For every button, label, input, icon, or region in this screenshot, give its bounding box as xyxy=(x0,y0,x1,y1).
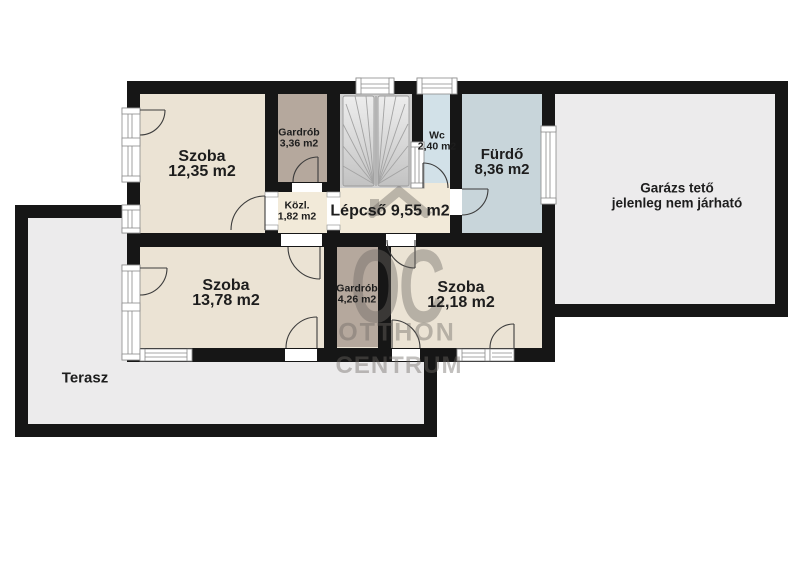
window xyxy=(122,265,140,360)
room-area: 12,35 m2 xyxy=(168,164,236,179)
room-name: Wc xyxy=(418,131,457,142)
main-block xyxy=(127,81,555,362)
floor-plan-page: OC OTTHON CENTRUM Szoba 12,35 m2 Gardrób… xyxy=(0,0,800,565)
room-label-garazs: Garázs tető jelenleg nem járható xyxy=(612,182,743,211)
room-area: 2,40 m2 xyxy=(418,141,457,152)
room-label-wc: Wc 2,40 m2 xyxy=(418,131,457,152)
room-label-szoba2: Szoba 13,78 m2 xyxy=(192,278,260,308)
window xyxy=(140,349,192,361)
window xyxy=(122,108,140,182)
room-name: Gardrób xyxy=(278,128,319,139)
room-area: 4,26 m2 xyxy=(336,294,377,305)
room-area: 12,18 m2 xyxy=(427,295,495,310)
room-area: 8,36 m2 xyxy=(474,162,529,177)
room-label-kozl: Közl. 1,82 m2 xyxy=(278,201,317,222)
room-name: Fürdő xyxy=(474,147,529,162)
room-area: 13,78 m2 xyxy=(192,293,260,308)
room-label-furdo: Fürdő 8,36 m2 xyxy=(474,147,529,177)
room-label-gardrob1: Gardrób 3,36 m2 xyxy=(278,128,319,149)
room-name: Garázs tető xyxy=(612,182,743,197)
room-label-szoba3: Szoba 12,18 m2 xyxy=(427,280,495,310)
room-name: Terasz xyxy=(62,370,108,387)
room-name: Lépcső xyxy=(330,203,386,220)
room-name: Gardrób xyxy=(336,284,377,295)
staircase xyxy=(340,94,412,188)
window xyxy=(356,78,394,94)
room-name: Szoba xyxy=(168,149,236,164)
room-name: Szoba xyxy=(427,280,495,295)
room-label-szoba1: Szoba 12,35 m2 xyxy=(168,149,236,179)
floor-plan-drawing xyxy=(0,0,800,565)
room-area: 1,82 m2 xyxy=(278,211,317,222)
room-area: 3,36 m2 xyxy=(278,138,319,149)
room-name: Szoba xyxy=(192,278,260,293)
window xyxy=(541,126,556,204)
window xyxy=(417,78,457,94)
room-area: 9,55 m2 xyxy=(391,203,450,220)
room-name: Közl. xyxy=(278,201,317,212)
room-label-lepcso: Lépcső 9,55 m2 xyxy=(330,204,449,219)
room-label-gardrob2: Gardrób 4,26 m2 xyxy=(336,284,377,305)
window xyxy=(457,349,490,361)
window xyxy=(122,205,140,233)
door-sill xyxy=(490,349,514,361)
room-note: jelenleg nem járható xyxy=(612,196,743,211)
room-label-terasz: Terasz xyxy=(62,371,108,386)
